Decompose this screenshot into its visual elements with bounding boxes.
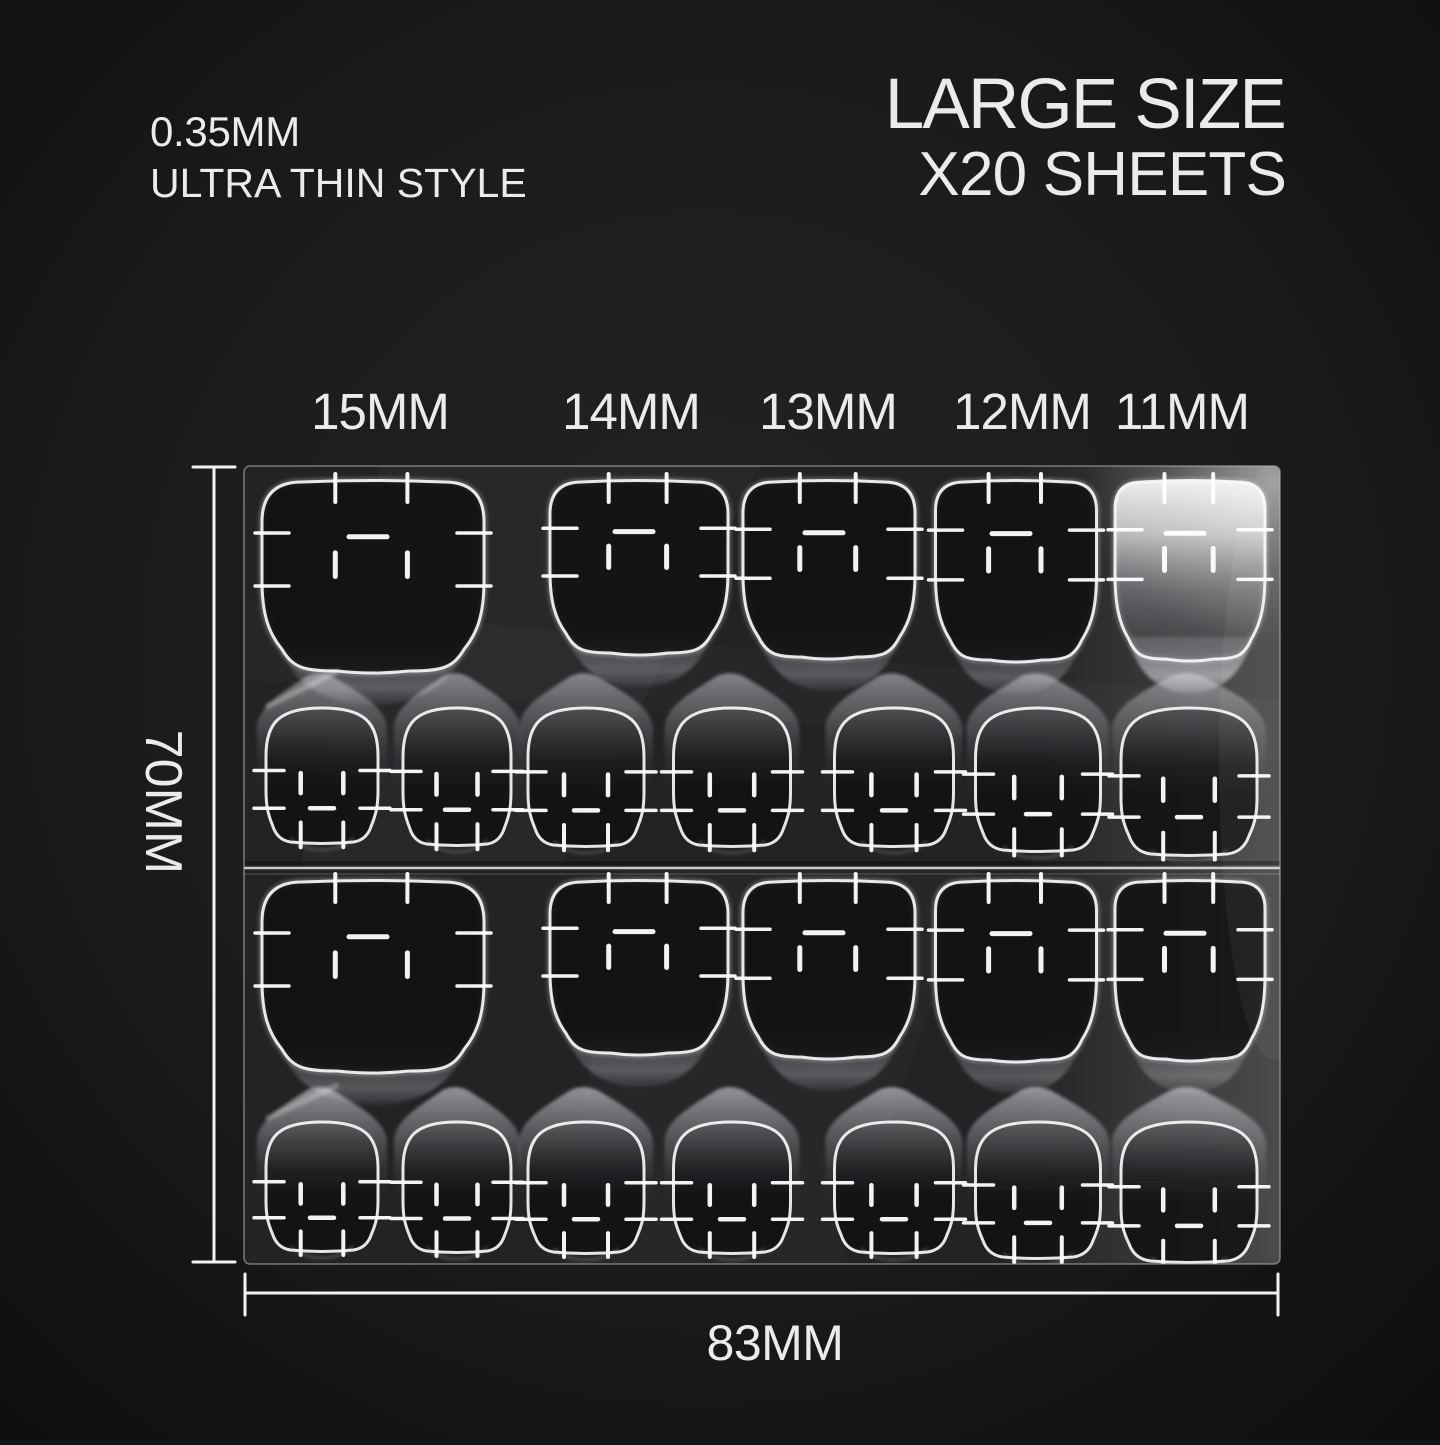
svg-text:14MM: 14MM [562, 383, 700, 440]
svg-text:LARGE SIZE: LARGE SIZE [885, 65, 1285, 144]
svg-text:70MM: 70MM [134, 730, 192, 874]
svg-text:13MM: 13MM [759, 383, 897, 440]
svg-text:11MM: 11MM [1115, 383, 1249, 440]
svg-text:ULTRA THIN STYLE: ULTRA THIN STYLE [150, 160, 527, 206]
svg-text:83MM: 83MM [707, 1315, 844, 1371]
svg-text:12MM: 12MM [953, 383, 1091, 440]
svg-text:0.35MM: 0.35MM [150, 108, 300, 155]
svg-text:X20 SHEETS: X20 SHEETS [918, 140, 1286, 209]
svg-text:15MM: 15MM [311, 383, 449, 440]
